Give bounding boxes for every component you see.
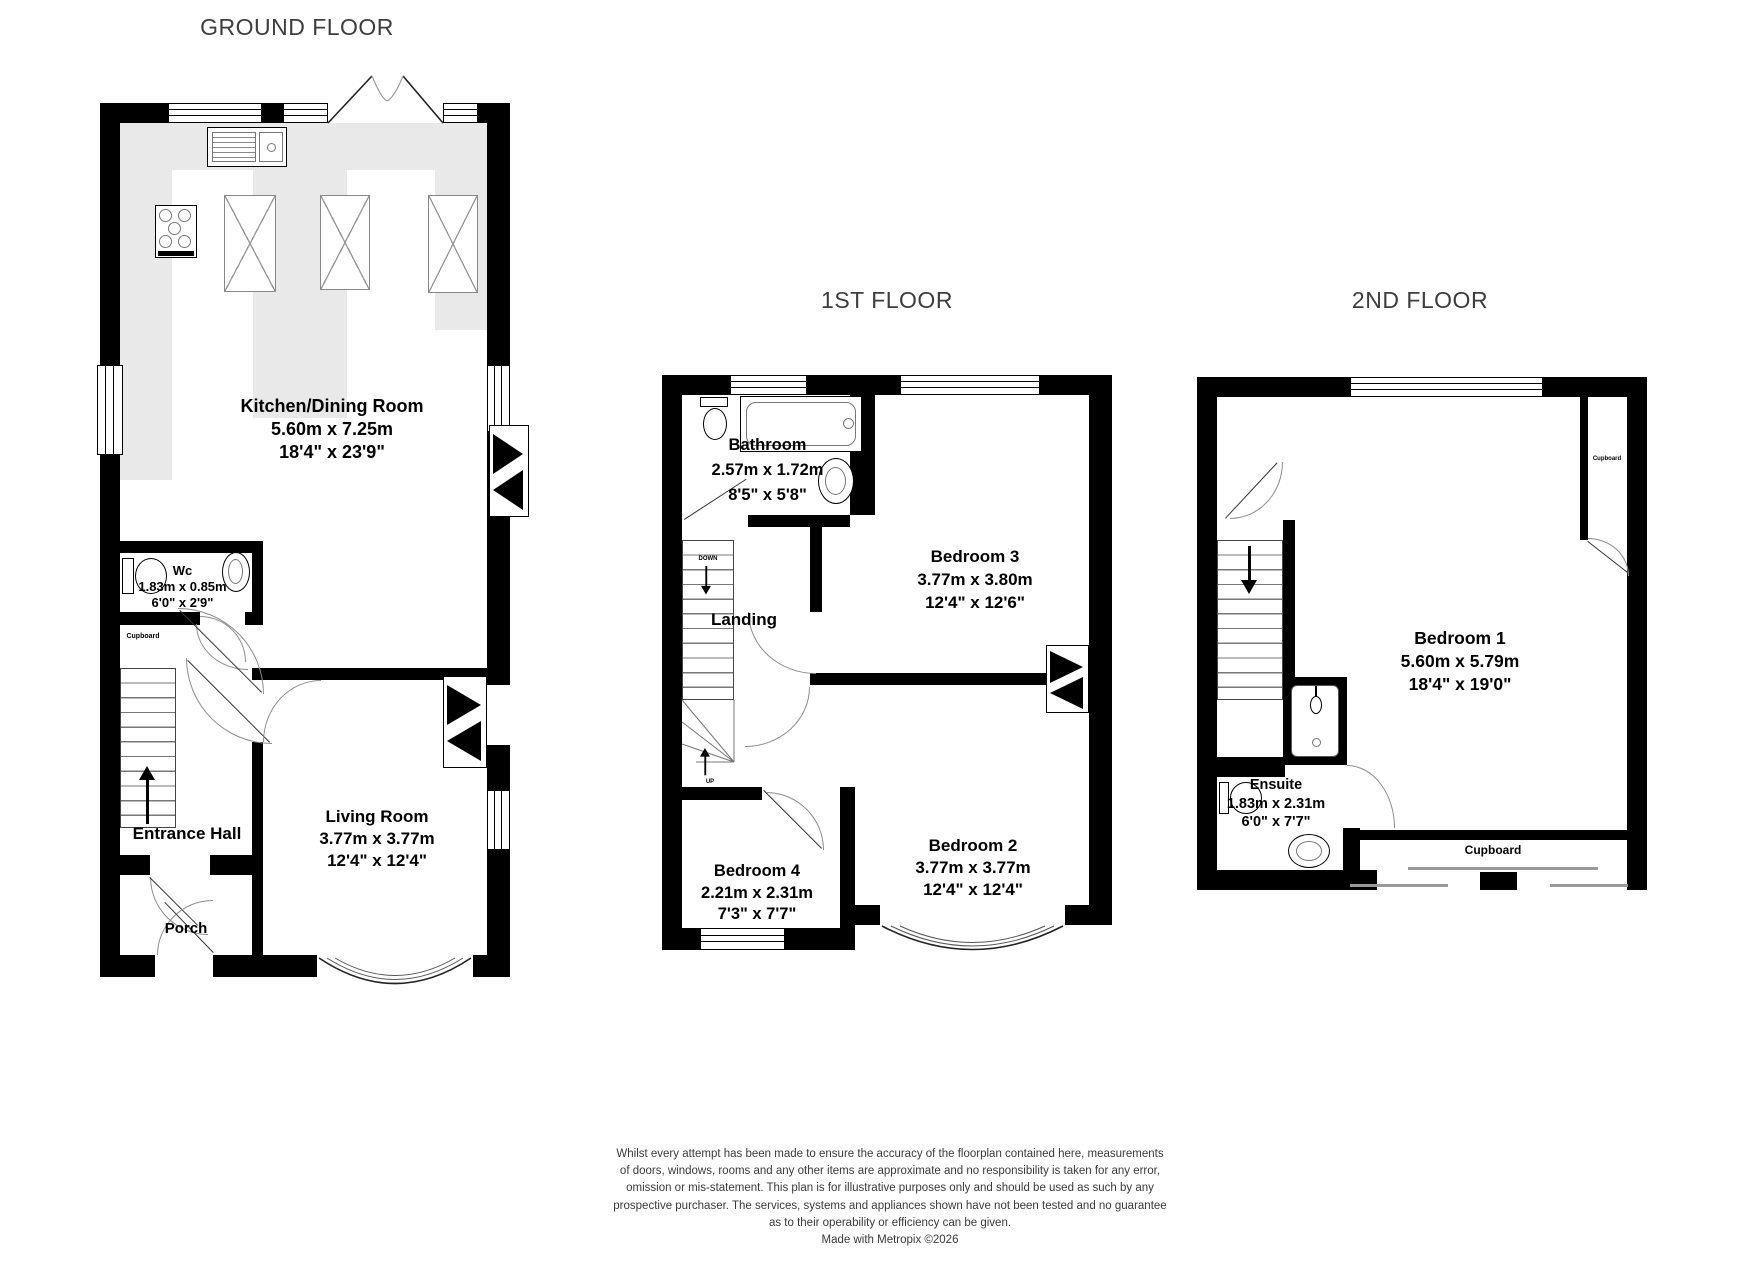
sink-bowl xyxy=(259,132,283,162)
window xyxy=(700,928,785,950)
room-label-bedroom1: Bedroom 1 5.60m x 5.79m 18'4" x 19'0" xyxy=(1360,627,1560,696)
wall xyxy=(807,375,900,395)
disclaimer: Whilst every attempt has been made to en… xyxy=(490,1146,1290,1249)
second-floor-title: 2ND FLOOR xyxy=(1220,287,1620,314)
room-label-kitchen: Kitchen/Dining Room 5.60m x 7.25m 18'4" … xyxy=(212,395,452,464)
room-label-bathroom: Bathroom 2.57m x 1.72m 8'5" x 5'8" xyxy=(685,433,850,508)
room-dim-imperial: 12'4" x 12'4" xyxy=(277,850,477,872)
room-dim-imperial: 12'4" x 12'6" xyxy=(875,591,1075,614)
wall xyxy=(100,455,120,975)
room-name: Porch xyxy=(136,920,236,938)
room-label-ensuite: Ensuite 1.83m x 2.31m 6'0" x 7'7" xyxy=(1205,776,1347,832)
room-name: Landing xyxy=(674,610,814,630)
sink-icon xyxy=(207,127,287,167)
window xyxy=(1350,377,1543,397)
wall xyxy=(213,955,317,977)
wall xyxy=(1197,377,1350,397)
counter-area xyxy=(120,123,172,480)
sliding-door xyxy=(1350,884,1448,887)
disclaimer-line: of doors, windows, rooms and any other i… xyxy=(490,1163,1290,1180)
room-label-living-room: Living Room 3.77m x 3.77m 12'4" x 12'4" xyxy=(277,806,477,872)
wall xyxy=(252,552,263,612)
wall xyxy=(785,928,855,950)
down-arrow-icon xyxy=(701,566,711,595)
window xyxy=(283,103,328,123)
window xyxy=(168,103,262,123)
room-name: Bedroom 2 xyxy=(873,835,1073,857)
sliding-door xyxy=(1550,884,1628,887)
door-swing-arc xyxy=(745,687,810,747)
window xyxy=(730,375,807,395)
arrow-stem xyxy=(146,777,149,824)
door-swing-arc xyxy=(1347,765,1395,828)
room-label-cupboard-side: Cupboard xyxy=(1580,456,1634,462)
arrow-stem xyxy=(704,755,706,775)
room-dim-metric: 1.83m x 2.31m xyxy=(1205,795,1347,814)
room-dim-imperial: 12'4" x 12'4" xyxy=(873,879,1073,901)
room-dim-metric: 5.60m x 7.25m xyxy=(212,418,452,441)
room-dim-imperial: 6'0" x 7'7" xyxy=(1205,813,1347,832)
room-dim-imperial: 6'0" x 2'9" xyxy=(120,595,245,611)
shower-icon xyxy=(1283,677,1347,765)
wall xyxy=(1343,828,1360,890)
room-label-wc: Wc 1.83m x 0.85m 6'0" x 2'9" xyxy=(120,563,245,611)
window xyxy=(487,790,510,850)
room-name: Entrance Hall xyxy=(97,824,277,844)
wall xyxy=(840,787,855,950)
basin-icon xyxy=(1288,834,1330,868)
wall xyxy=(682,928,700,950)
up-arrow-icon xyxy=(700,748,710,775)
chimney-icon xyxy=(489,425,529,517)
room-label-cupboard-second: Cupboard xyxy=(1413,843,1573,857)
room-label-entrance-hall: Entrance Hall xyxy=(97,824,277,844)
burner xyxy=(159,209,172,222)
disclaimer-line: as to their operability or efficiency ca… xyxy=(490,1215,1290,1232)
room-dim-metric: 3.77m x 3.80m xyxy=(875,568,1075,591)
room-label-porch: Porch xyxy=(136,920,236,938)
wall xyxy=(100,103,168,123)
burner xyxy=(168,222,181,235)
room-dim-metric: 2.21m x 2.31m xyxy=(676,883,838,905)
down-arrow-icon xyxy=(1241,546,1257,594)
burner xyxy=(159,235,172,248)
room-label-bedroom4: Bedroom 4 2.21m x 2.31m 7'3" x 7'7" xyxy=(676,861,838,926)
arrow-stem xyxy=(705,566,707,588)
door-swing-arc xyxy=(766,792,824,850)
wall xyxy=(262,103,283,123)
wall xyxy=(100,541,263,553)
double-door-icon xyxy=(328,68,443,125)
disclaimer-line: prospective purchaser. The services, sys… xyxy=(490,1198,1290,1215)
hob-icon xyxy=(155,205,197,258)
stairs-down-label: DOWN xyxy=(684,556,732,562)
wall xyxy=(1089,375,1112,925)
window xyxy=(443,103,478,123)
wall xyxy=(1065,905,1112,925)
door-swing-arc xyxy=(1230,462,1283,519)
shower-tray xyxy=(1291,685,1339,757)
room-dim-metric: 5.60m x 5.79m xyxy=(1360,650,1560,673)
shower-drain xyxy=(1312,738,1321,747)
room-name: Ensuite xyxy=(1205,776,1347,795)
room-label-landing: Landing xyxy=(674,610,814,630)
room-dim-metric: 3.77m x 3.77m xyxy=(277,828,477,850)
room-name: Bedroom 4 xyxy=(676,861,838,883)
unit-icon xyxy=(224,195,276,292)
wall xyxy=(487,103,510,365)
wall xyxy=(100,955,155,977)
wall xyxy=(100,855,150,875)
wall xyxy=(1197,757,1285,777)
shower-head xyxy=(1310,696,1322,714)
wall xyxy=(473,955,510,977)
wall xyxy=(252,742,263,955)
burner xyxy=(178,209,191,222)
wall xyxy=(210,855,262,875)
wall xyxy=(1580,397,1588,540)
sliding-door xyxy=(1408,867,1598,870)
room-label-cupboard-ground: Cupboard xyxy=(98,633,188,640)
wall xyxy=(1480,872,1517,890)
bay-window xyxy=(880,925,1065,975)
bay-window xyxy=(317,957,473,1011)
sink-drainer xyxy=(212,132,256,162)
room-label-bedroom3: Bedroom 3 3.77m x 3.80m 12'4" x 12'6" xyxy=(875,545,1075,614)
disclaimer-credit: Made with Metropix ©2026 xyxy=(490,1232,1290,1249)
window xyxy=(900,375,1040,395)
window xyxy=(97,365,123,455)
wall xyxy=(487,745,510,790)
ground-floor-title: GROUND FLOOR xyxy=(97,14,497,41)
burner xyxy=(178,235,191,248)
room-name: Wc xyxy=(120,563,245,579)
wall xyxy=(855,905,880,925)
unit-icon xyxy=(428,195,478,293)
room-dim-imperial: 7'3" x 7'7" xyxy=(676,904,838,926)
wall xyxy=(1627,377,1647,890)
room-dim-metric: 1.83m x 0.85m xyxy=(120,579,245,595)
up-arrow-icon xyxy=(139,766,155,824)
chimney-icon xyxy=(1046,645,1089,713)
room-name: Living Room xyxy=(277,806,477,828)
basin-bowl xyxy=(1296,841,1322,861)
room-name: Bathroom xyxy=(685,433,850,458)
arrow-stem xyxy=(1248,546,1251,583)
window xyxy=(487,365,510,432)
unit-icon xyxy=(320,195,370,290)
room-name: Cupboard xyxy=(1413,843,1573,857)
toilet-icon xyxy=(700,397,728,407)
room-dim-metric: 3.77m x 3.77m xyxy=(873,857,1073,879)
room-dim-metric: 2.57m x 1.72m xyxy=(685,458,850,483)
wall xyxy=(810,523,822,612)
wall xyxy=(1360,830,1627,840)
door-swing-arc xyxy=(1588,538,1629,576)
wall xyxy=(748,515,850,527)
wall xyxy=(682,787,762,800)
bath-tap xyxy=(843,418,854,429)
chimney-icon xyxy=(443,676,487,768)
first-floor-title: 1ST FLOOR xyxy=(687,287,1087,314)
room-dim-imperial: 8'5" x 5'8" xyxy=(685,483,850,508)
stairs-up-label: UP xyxy=(688,779,732,785)
sink-drain xyxy=(267,143,276,152)
disclaimer-line: Whilst every attempt has been made to en… xyxy=(490,1146,1290,1163)
room-name: Bedroom 3 xyxy=(875,545,1075,568)
room-name: Kitchen/Dining Room xyxy=(212,395,452,418)
wall xyxy=(1283,520,1295,677)
room-label-bedroom2: Bedroom 2 3.77m x 3.77m 12'4" x 12'4" xyxy=(873,835,1073,901)
hob-panel xyxy=(158,251,194,256)
room-dim-imperial: 18'4" x 19'0" xyxy=(1360,673,1560,696)
floorplan-canvas: GROUND FLOOR xyxy=(0,0,1753,1270)
room-name: Bedroom 1 xyxy=(1360,627,1560,650)
room-dim-imperial: 18'4" x 23'9" xyxy=(212,441,452,464)
disclaimer-line: omission or mis-statement. This plan is … xyxy=(490,1180,1290,1197)
wall xyxy=(100,103,120,365)
